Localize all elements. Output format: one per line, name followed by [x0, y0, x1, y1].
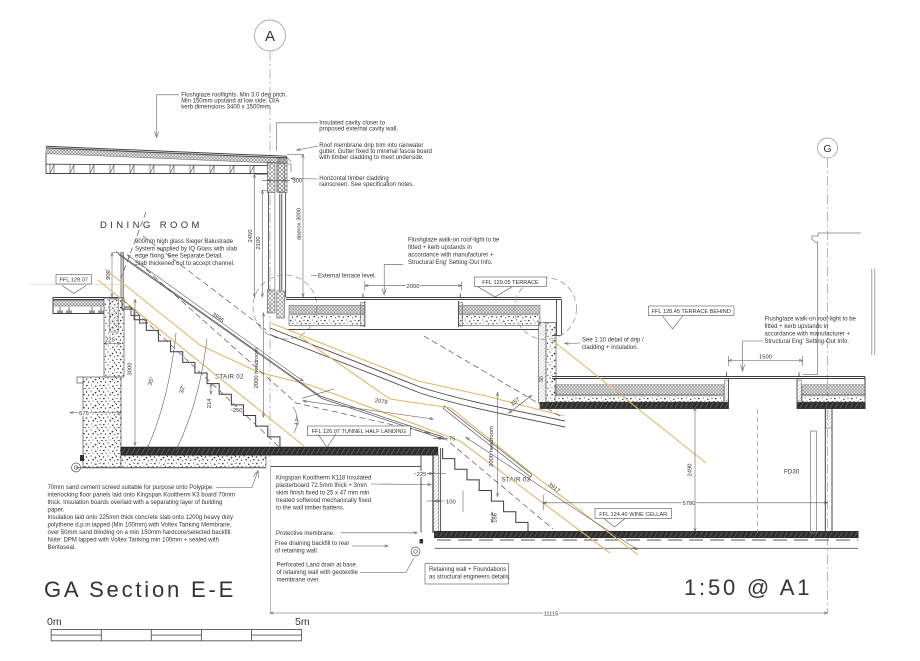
svg-text:Flushglaze walk-on roof-light: Flushglaze walk-on roof-light to be — [408, 238, 500, 244]
svg-text:Note: DPM lapped with Voltex T: Note: DPM lapped with Voltex Tanking min… — [48, 538, 219, 544]
svg-text:300: 300 — [293, 179, 303, 185]
svg-text:100: 100 — [446, 499, 456, 505]
svg-text:interlocking floor panels laid: interlocking floor panels laid onto King… — [48, 493, 235, 499]
svg-text:Bentoseal.: Bentoseal. — [48, 545, 77, 551]
svg-text:Structural Eng' Setting-Out In: Structural Eng' Setting-Out Info. — [408, 260, 493, 266]
svg-text:50: 50 — [539, 376, 545, 382]
svg-text:fitted + kerb upstands in: fitted + kerb upstands in — [408, 245, 472, 251]
svg-text:Kingspan Kooltherm K118 Insula: Kingspan Kooltherm K118 Insulated — [276, 476, 371, 482]
svg-text:FFL 124.40 WINE CELLAR: FFL 124.40 WINE CELLAR — [599, 512, 667, 518]
svg-text:2450: 2450 — [248, 230, 254, 243]
svg-text:accordance with manufacturer +: accordance with manufacturer + — [408, 253, 494, 259]
svg-text:FFL 129.05 TERRACE: FFL 129.05 TERRACE — [482, 280, 539, 286]
svg-text:proposed external cavity wall.: proposed external cavity wall. — [319, 127, 398, 133]
svg-text:Free draining backfill to rear: Free draining backfill to rear — [275, 541, 349, 547]
svg-text:System supplied by IQ Glass wi: System supplied by IQ Glass with slab — [135, 246, 238, 252]
svg-text:Retaining wall + Foundations: Retaining wall + Foundations — [429, 567, 506, 573]
svg-text:kerb dimensions 3400 x 1500mm.: kerb dimensions 3400 x 1500mm. — [181, 105, 271, 111]
svg-text:2000 headroom: 2000 headroom — [254, 348, 260, 389]
svg-text:186: 186 — [493, 513, 499, 523]
svg-text:A: A — [265, 28, 275, 45]
svg-text:2100: 2100 — [256, 237, 262, 250]
svg-text:to the wall timber battens.: to the wall timber battens. — [276, 506, 345, 512]
svg-text:Slab thickened out to accept c: Slab thickened out to accept channel. — [135, 261, 235, 267]
svg-text:membrane over.: membrane over. — [277, 578, 321, 584]
svg-text:FFL 126.07 TUNNEL HALF LANDING: FFL 126.07 TUNNEL HALF LANDING — [312, 429, 406, 435]
svg-text:675: 675 — [79, 411, 89, 417]
svg-text:250: 250 — [233, 408, 243, 414]
svg-text:edge fixing. See Separate Deta: edge fixing. See Separate Detail. — [135, 254, 223, 260]
svg-text:G: G — [823, 143, 831, 155]
svg-text:plasterboard 72.5mm thick + 3m: plasterboard 72.5mm thick + 3mm — [276, 483, 367, 489]
svg-text:skim finish fixed to 25 x 47 m: skim finish fixed to 25 x 47 mm min — [276, 491, 369, 497]
svg-text:rainscreen. See specification: rainscreen. See specification notes. — [319, 182, 414, 188]
svg-text:polythene d.p.m lapped (Min 10: polythene d.p.m lapped (Min 100mm) with … — [48, 523, 232, 529]
svg-text:cladding + insulation.: cladding + insulation. — [582, 345, 639, 351]
svg-text:5780: 5780 — [683, 501, 696, 507]
svg-text:fitted + kerb upstands in: fitted + kerb upstands in — [765, 324, 829, 330]
svg-text:2490: 2490 — [688, 464, 694, 477]
svg-text:2000 headroom: 2000 headroom — [489, 426, 495, 467]
svg-text:See 1:10 detail of drip /: See 1:10 detail of drip / — [582, 338, 644, 344]
svg-text:over 50mm sand blinding on a m: over 50mm sand blinding on a min 150mm h… — [48, 530, 233, 536]
svg-text:treated softwood mechanically: treated softwood mechanically fixed — [276, 498, 371, 504]
svg-text:GA Section E-E: GA Section E-E — [44, 577, 236, 602]
svg-text:1:50 @ A1: 1:50 @ A1 — [684, 575, 812, 600]
svg-text:paper.: paper. — [48, 508, 65, 514]
svg-text:Structural Eng' Setting-Out In: Structural Eng' Setting-Out Info. — [765, 339, 850, 345]
svg-text:0m: 0m — [47, 616, 62, 628]
svg-text:2000: 2000 — [407, 284, 420, 290]
svg-text:5m: 5m — [295, 616, 310, 628]
svg-text:STAIR 02: STAIR 02 — [215, 374, 244, 381]
svg-text:Insulation laid onto 225mm thi: Insulation laid onto 225mm thick concret… — [48, 515, 233, 521]
svg-text:External terrace level.: External terrace level. — [318, 274, 376, 280]
svg-text:225: 225 — [417, 472, 427, 478]
svg-text:with timber cladding to meet u: with timber cladding to meet underside. — [318, 155, 424, 161]
svg-text:FFL 129.07: FFL 129.07 — [59, 278, 87, 284]
svg-text:70mm sand cement screed suitab: 70mm sand cement screed suitable for pur… — [48, 485, 213, 491]
svg-text:900mm high glass Sieger Balust: 900mm high glass Sieger Balustrade — [135, 239, 234, 245]
svg-text:Protective membrane.: Protective membrane. — [276, 531, 335, 537]
svg-text:approx 3000: approx 3000 — [297, 208, 303, 240]
svg-text:accordance with manufacturer +: accordance with manufacturer + — [765, 332, 851, 338]
svg-text:FD30: FD30 — [784, 469, 800, 476]
svg-text:214: 214 — [207, 398, 213, 408]
svg-text:thick. Insulation boards overl: thick. Insulation boards overlaid with a… — [48, 500, 223, 506]
svg-text:as structural engineers detail: as structural engineers details. — [429, 575, 511, 581]
svg-text:Flushglaze walk-on roof-light: Flushglaze walk-on roof-light to be — [765, 317, 857, 323]
svg-text:of retaining wall with geotext: of retaining wall with geotextile — [277, 570, 359, 576]
svg-text:11115: 11115 — [544, 611, 559, 617]
svg-text:FFL 128.45 TERRACE BEHIND: FFL 128.45 TERRACE BEHIND — [652, 309, 731, 315]
svg-text:3000: 3000 — [128, 363, 134, 376]
svg-text:225: 225 — [105, 338, 115, 344]
svg-text:Perforated Land drain at base: Perforated Land drain at base — [277, 563, 357, 569]
svg-text:of retaining wall.: of retaining wall. — [275, 549, 319, 555]
svg-text:75: 75 — [449, 437, 455, 443]
svg-text:1500: 1500 — [759, 355, 772, 361]
svg-text:DINING ROOM: DINING ROOM — [100, 220, 203, 231]
